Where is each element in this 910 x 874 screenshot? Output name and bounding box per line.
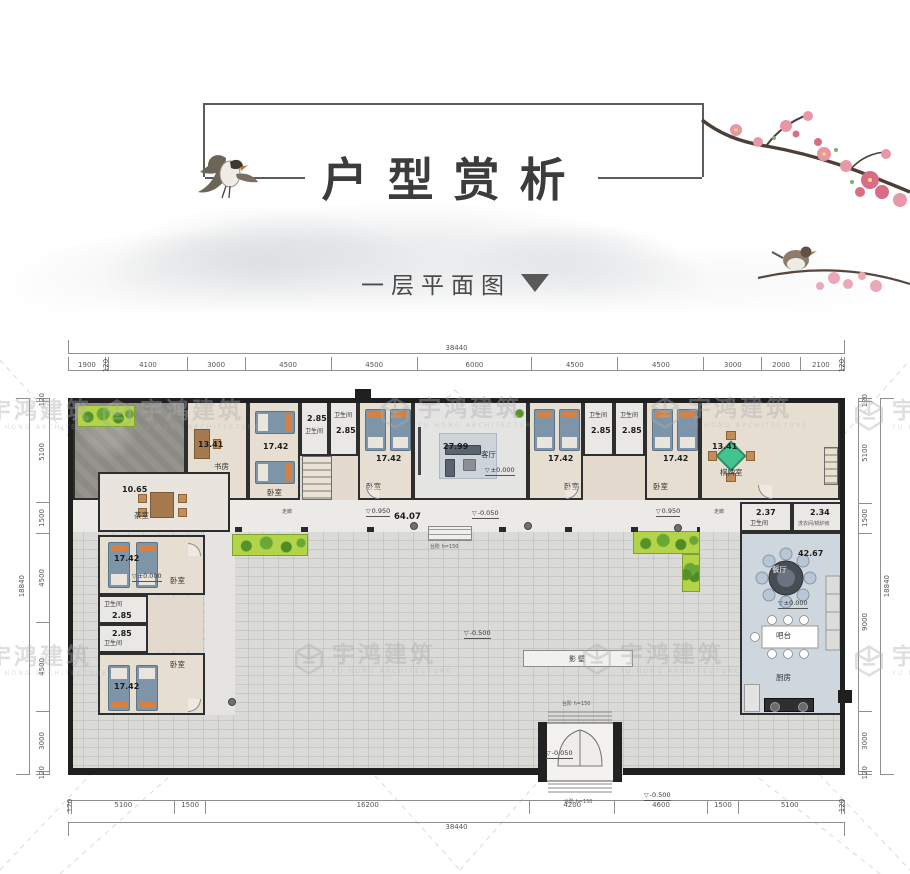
dimension-segment: 5100: [738, 801, 841, 814]
room-label: 吧台: [776, 632, 791, 640]
plant: [515, 409, 524, 418]
dimension-label: 120: [838, 799, 847, 812]
hall-floor: [148, 597, 203, 651]
dimension-label: 3000: [724, 361, 742, 370]
bed: [255, 461, 295, 484]
area-label: 2.85: [112, 630, 132, 638]
column: [674, 524, 682, 532]
door-arc: [366, 486, 379, 499]
dimension-segment: 120: [859, 771, 872, 775]
stove: [764, 698, 814, 712]
west-wall: [68, 398, 73, 775]
header-section: 户型赏析: [0, 0, 910, 330]
dimension-segment: 1900: [68, 357, 105, 370]
steps-label: 台阶 h=150: [564, 800, 593, 805]
column: [228, 698, 236, 706]
east-wall: [840, 398, 845, 775]
level-marker: -0.050: [546, 750, 573, 759]
dimension-segment: 1500: [36, 502, 49, 532]
dimension-segment: 4500: [531, 357, 617, 370]
door-arc: [758, 485, 772, 499]
building-plan: 13.41 书房 17.42 卧室 2.85 卫生间 卫生间 2.85: [68, 398, 845, 775]
north-porch-bump: [355, 389, 371, 399]
dimension-bottom-segments: 12051001500162004200460015005100120: [68, 800, 845, 814]
bed: [108, 542, 130, 588]
dimension-label: 38440: [445, 344, 467, 353]
area-label: 17.42: [263, 443, 288, 451]
room-living: 27.99 客厅 ±0.000: [413, 401, 528, 500]
dimension-left-overall: 18840: [16, 398, 30, 775]
area-label: 2.85: [591, 427, 611, 435]
level-marker: 0.950: [656, 508, 680, 517]
dimension-segment: 1500: [707, 801, 738, 814]
dimension-label: 2000: [772, 361, 790, 370]
dimension-label: 4600: [652, 801, 670, 810]
dimension-label: 4500: [39, 658, 46, 676]
floor-plan-sheet: 38440 1900120410030004500450060004500450…: [0, 330, 910, 874]
dimension-segment: 4500: [36, 533, 49, 622]
room-label: 卫生间: [589, 413, 607, 419]
steps-label: 台阶 h=150: [562, 702, 591, 707]
room-chess: 13.41 棋牌室: [700, 401, 840, 500]
area-label: 2.85: [336, 427, 356, 435]
door-arc: [188, 543, 201, 556]
dimension-label: 9000: [862, 613, 869, 631]
dimension-segment: 3000: [36, 711, 49, 771]
dimension-left-segments: 12051001500450045003000120: [36, 398, 50, 775]
dimension-segment: 4100: [108, 357, 187, 370]
subtitle-text: 一层平面图: [361, 273, 511, 299]
level-marker: 0.950: [366, 508, 390, 517]
chair: [708, 451, 717, 461]
room-bedroom-n1: 17.42 卧室: [248, 401, 300, 500]
chair: [178, 508, 187, 517]
dimension-segment: 5100: [36, 401, 49, 502]
dimension-segment: 4500: [36, 622, 49, 711]
dimension-label: 6000: [466, 361, 484, 370]
watermark-cn: 宇鸿建筑: [892, 645, 910, 669]
dimension-segment: 18840: [16, 398, 29, 775]
bed: [534, 409, 555, 451]
dimension-bottom-overall: 38440: [68, 822, 845, 836]
room-label: 书房: [214, 463, 229, 471]
dimension-label: 16200: [357, 801, 379, 810]
dimension-segment: 120: [841, 801, 845, 814]
east-corner-bump: [838, 690, 852, 703]
bed: [559, 409, 580, 451]
room-bath-n1: 2.85 卫生间: [300, 401, 329, 456]
dimension-segment: 5100: [859, 401, 872, 502]
poster-page: 户型赏析: [0, 0, 910, 874]
room-bedroom-w2: 17.42 卧室: [98, 653, 205, 715]
dimension-segment: 2100: [800, 357, 841, 370]
room-label: 卫生间: [104, 602, 122, 608]
triangle-down-icon: [521, 274, 549, 292]
planter: [232, 534, 308, 556]
area-label: 2.85: [307, 415, 327, 423]
dimension-label: 2100: [812, 361, 830, 370]
hall-floor: [583, 456, 645, 500]
screen-wall-label: 影壁: [569, 654, 587, 664]
courtyard-steps: [428, 526, 472, 541]
room-bath-n3: 卫生间 2.85: [583, 401, 614, 456]
dimension-segment: 5100: [71, 801, 174, 814]
area-label: 27.99: [443, 443, 468, 451]
frame-border-segment: [598, 177, 702, 179]
south-wall: [623, 768, 845, 775]
dimension-label: 5100: [39, 443, 46, 461]
area-label: 17.42: [376, 455, 401, 463]
garden-plants: [77, 405, 135, 427]
area-label: 2.37: [756, 509, 776, 517]
room-label: 卧室: [653, 483, 668, 491]
dimension-label: 4500: [365, 361, 383, 370]
room-bedroom-n4: 17.42 卧室: [645, 401, 700, 500]
south-wall: [68, 768, 538, 775]
chair: [726, 431, 736, 440]
tv-wall: [418, 427, 421, 475]
room-bath-e: 2.37 卫生间: [740, 502, 792, 532]
room-label: 卧室: [170, 661, 185, 669]
dimension-label: 5100: [862, 444, 869, 462]
west-walkway-floor: [205, 532, 235, 715]
area-label: 13.41: [712, 443, 737, 451]
dimension-right-overall: 18840: [880, 398, 894, 775]
bed: [255, 411, 295, 434]
area-label: 17.42: [114, 683, 139, 691]
room-dining-kitchen: 42.67 餐厅 ±0.000 吧台 厨房: [740, 532, 845, 715]
room-label: 茶室: [134, 512, 149, 520]
dimension-segment: 4500: [245, 357, 331, 370]
watermark-cn: 宇鸿建筑: [892, 399, 910, 423]
dimension-segment: 3000: [859, 711, 872, 771]
area-label: 13.41: [198, 441, 223, 449]
bed: [677, 409, 698, 451]
dimension-top-overall: 38440: [68, 340, 845, 354]
level-marker: -0.500: [464, 630, 491, 639]
room-bedroom-w1: 17.42 ±0.000 卧室: [98, 535, 205, 595]
level-marker: ±0.000: [778, 600, 808, 609]
room-bedroom-n2: 17.42 卧室: [358, 401, 413, 500]
dimension-label: 3000: [207, 361, 225, 370]
area-label: 17.42: [663, 455, 688, 463]
staircase: [302, 456, 332, 500]
door-arc: [188, 699, 201, 712]
room-utility: 2.34 洗衣间/锅炉房: [792, 502, 845, 532]
dimension-label: 4100: [139, 361, 157, 370]
dimension-label: 1500: [714, 801, 732, 810]
room-label: 厨房: [776, 674, 791, 682]
watermark-en: YU HONG ARCHITECTURE: [892, 424, 910, 431]
bed: [652, 409, 673, 451]
dimension-label: 38440: [445, 823, 467, 832]
column: [410, 522, 418, 530]
room-label: 卫生间: [305, 429, 323, 435]
dimension-segment: 38440: [68, 340, 845, 353]
dimension-segment: 9000: [859, 533, 872, 711]
bird-illustration: [196, 148, 262, 214]
dimension-label: 1900: [78, 361, 96, 370]
tea-table: [150, 492, 174, 518]
dimension-segment: 18840: [881, 398, 894, 775]
dimension-segment: 6000: [417, 357, 531, 370]
sofa: [445, 459, 455, 477]
dimension-label: 1500: [862, 509, 869, 527]
level-marker: -0.500: [644, 792, 671, 801]
room-label: 洗衣间/锅炉房: [798, 522, 830, 527]
dimension-label: 120: [838, 359, 847, 372]
dimension-segment: 4500: [617, 357, 703, 370]
room-bath-n2: 卫生间 2.85: [329, 401, 358, 456]
dimension-segment: 4600: [614, 801, 707, 814]
room-label: 餐厅: [772, 566, 787, 574]
hall-floor: [332, 456, 358, 500]
room-label: 棋牌室: [720, 469, 743, 477]
corridor-area-label: 64.07: [394, 512, 421, 522]
area-label: 17.42: [548, 455, 573, 463]
dimension-label: 3000: [862, 732, 869, 750]
watermark-en: YU HONG ARCHITECTURE: [892, 670, 910, 677]
column: [524, 522, 532, 530]
room-bedroom-n3: 17.42 卧室: [528, 401, 583, 500]
dimension-top-segments: 1900120410030004500450060004500450030002…: [68, 357, 845, 371]
room-label: 客厅: [481, 451, 496, 459]
room-label: 卫生间: [620, 413, 638, 419]
kitchen-counter: [744, 684, 760, 712]
dimension-segment: 4500: [331, 357, 417, 370]
dimension-label: 120: [862, 766, 869, 779]
dimension-label: 120: [39, 766, 46, 779]
dimension-segment: 1500: [859, 503, 872, 533]
dimension-label: 4500: [652, 361, 670, 370]
north-wall: [68, 398, 845, 403]
room-label: 卫生间: [104, 641, 122, 647]
room-bath-w2: 2.85 卫生间: [98, 624, 148, 653]
door-arc: [566, 486, 579, 499]
room-label: 卧室: [170, 577, 185, 585]
dimension-label: 1500: [39, 509, 46, 527]
area-label: 2.34: [810, 509, 830, 517]
room-bath-n4: 卫生间 2.85: [614, 401, 645, 456]
dimension-label: 4500: [566, 361, 584, 370]
dimension-segment: 120: [36, 771, 49, 775]
dimension-segment: 2000: [761, 357, 800, 370]
room-label: 卧室: [267, 489, 282, 497]
dimension-label: 5100: [781, 801, 799, 810]
screen-wall: 影壁: [523, 650, 633, 667]
chair: [746, 451, 755, 461]
bed: [390, 409, 411, 451]
dimension-label: 1500: [181, 801, 199, 810]
dimension-segment: 38440: [68, 823, 845, 836]
staircase: [824, 447, 838, 485]
dimension-segment: 3000: [703, 357, 761, 370]
chair: [138, 494, 147, 503]
steps-label: 台阶 h=150: [430, 545, 459, 550]
coffee-table: [463, 459, 476, 471]
bed: [365, 409, 386, 451]
dimension-segment: 16200: [205, 801, 529, 814]
area-label: 2.85: [112, 612, 132, 620]
planter: [682, 554, 700, 592]
dimension-segment: 1500: [174, 801, 205, 814]
corridor-label: 走廊: [714, 510, 724, 515]
dimension-segment: 3000: [187, 357, 245, 370]
subtitle: 一层平面图: [0, 266, 910, 300]
dimension-label: 18840: [19, 575, 26, 597]
level-marker: ±0.000: [485, 467, 515, 476]
dimension-label: 18840: [884, 575, 891, 597]
room-bath-w1: 卫生间 2.85: [98, 595, 148, 624]
dimension-label: 4500: [39, 569, 46, 587]
area-label: 10.65: [122, 486, 147, 494]
dimension-label: 5100: [114, 801, 132, 810]
room-label: 卫生间: [750, 521, 768, 527]
level-marker: ±0.000: [132, 573, 162, 582]
dimension-label: 4500: [279, 361, 297, 370]
area-label: 17.42: [114, 555, 139, 563]
area-label: 2.85: [622, 427, 642, 435]
dimension-right-segments: 1205100150090003000120: [858, 398, 872, 775]
dimension-segment: 120: [841, 357, 845, 370]
room-tea: 10.65 茶室: [98, 472, 230, 532]
level-marker: -0.050: [472, 510, 499, 519]
area-label: 42.67: [798, 550, 823, 558]
corridor-label: 走廊: [282, 510, 292, 515]
planter: [633, 531, 700, 554]
room-label: 卫生间: [334, 413, 352, 419]
dimension-label: 3000: [39, 732, 46, 750]
chair: [178, 494, 187, 503]
title-frame: 户型赏析: [203, 103, 704, 177]
page-title: 户型赏析: [322, 157, 586, 203]
